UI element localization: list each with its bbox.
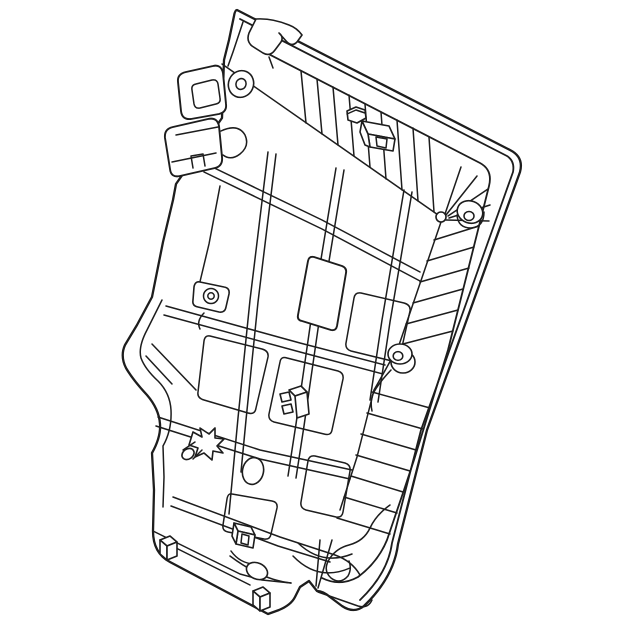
base-post-right [253, 587, 270, 611]
ladder-ribs-right [337, 222, 479, 534]
bracket-clip [280, 386, 309, 418]
mounting-tab-lower [165, 119, 247, 177]
grommet-top-right [454, 197, 486, 228]
parts-diagram-canvas: Line-art parts illustration of a vehicle… [0, 0, 640, 630]
star-clip [180, 428, 224, 462]
box-clip [360, 121, 395, 151]
seat-back-panel-illustration: Line-art parts illustration of a vehicle… [0, 0, 640, 630]
base-post-left [160, 536, 177, 560]
mounting-tab-upper [178, 66, 226, 119]
edge-curl [221, 128, 247, 158]
grommet-top-left [224, 67, 258, 102]
pocket [301, 456, 350, 517]
base-rail [153, 505, 390, 607]
fan-hub [436, 212, 446, 222]
hook-bracket [248, 19, 302, 68]
pocket [198, 336, 268, 414]
center-slot [298, 257, 346, 330]
